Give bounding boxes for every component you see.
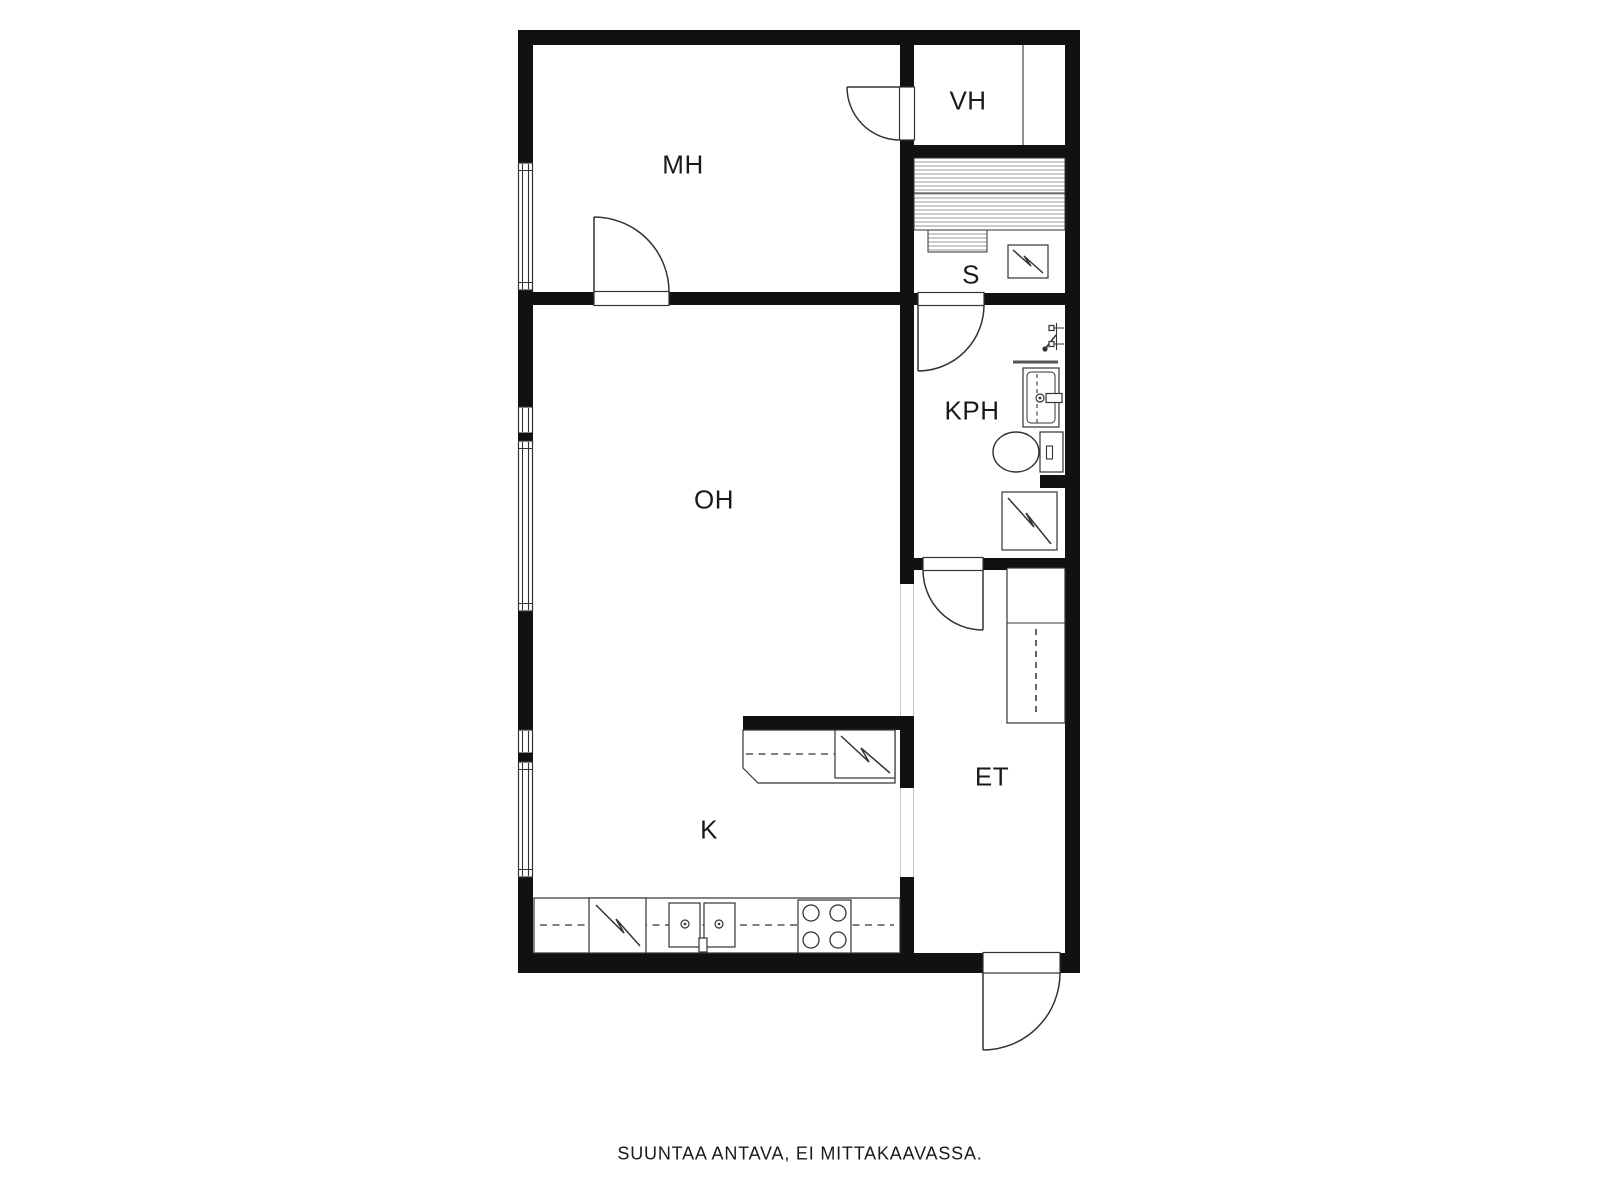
island-appliance-icon xyxy=(835,730,895,778)
door-entrance-icon xyxy=(983,953,1060,1051)
wall-right xyxy=(1065,30,1080,973)
floor-plan-drawing xyxy=(0,0,1600,1200)
room-label-s: S xyxy=(962,260,980,291)
room-label-kph: KPH xyxy=(945,396,1000,427)
cooktop-icon xyxy=(798,900,851,953)
door-kph-icon xyxy=(923,558,983,631)
window-mh-icon xyxy=(519,163,533,290)
disclaimer-text: SUUNTAA ANTAVA, EI MITTAKAAVASSA. xyxy=(617,1144,982,1165)
sauna-fixtures xyxy=(914,158,1065,278)
washing-machine-icon xyxy=(1002,492,1057,550)
toilet-icon xyxy=(993,432,1063,472)
room-label-k: K xyxy=(700,815,718,846)
coat-closet-icon xyxy=(1007,568,1065,723)
kitchen-counter xyxy=(534,898,900,953)
shower-mixer-icon xyxy=(1042,323,1064,352)
room-label-mh: MH xyxy=(662,150,703,181)
door-sauna-icon xyxy=(918,293,984,372)
room-label-et: ET xyxy=(975,762,1009,793)
sauna-step-icon xyxy=(928,230,987,252)
door-mh-icon xyxy=(594,217,669,306)
wall-mh-oh xyxy=(533,292,914,305)
washbasin-icon xyxy=(1023,368,1062,427)
door-vh-icon xyxy=(847,87,915,140)
wall-top xyxy=(518,30,1080,45)
floor-plan-canvas: MH VH S KPH OH K ET SUUNTAA ANTAVA, EI M… xyxy=(0,0,1600,1200)
wall-toilet-stub xyxy=(1040,475,1065,488)
window-oh-upper-icon xyxy=(518,407,533,611)
windows xyxy=(518,163,533,877)
wall-kitchen-stub-horizontal xyxy=(743,716,914,730)
room-label-vh: VH xyxy=(949,86,986,117)
refrigerator-icon xyxy=(589,898,646,953)
sauna-bench-upper-icon xyxy=(914,158,1065,193)
wall-kitchen-stub-vertical xyxy=(900,730,914,788)
kitchen-island-counter xyxy=(743,730,895,783)
room-label-oh: OH xyxy=(694,485,734,516)
sauna-stove-icon xyxy=(1008,245,1048,278)
window-oh-lower-icon xyxy=(518,730,533,877)
wall-k-et-lower xyxy=(900,877,914,953)
kph-fixtures xyxy=(993,323,1064,550)
wall-vh-s xyxy=(900,145,1065,158)
sauna-bench-lower-icon xyxy=(914,193,1065,230)
